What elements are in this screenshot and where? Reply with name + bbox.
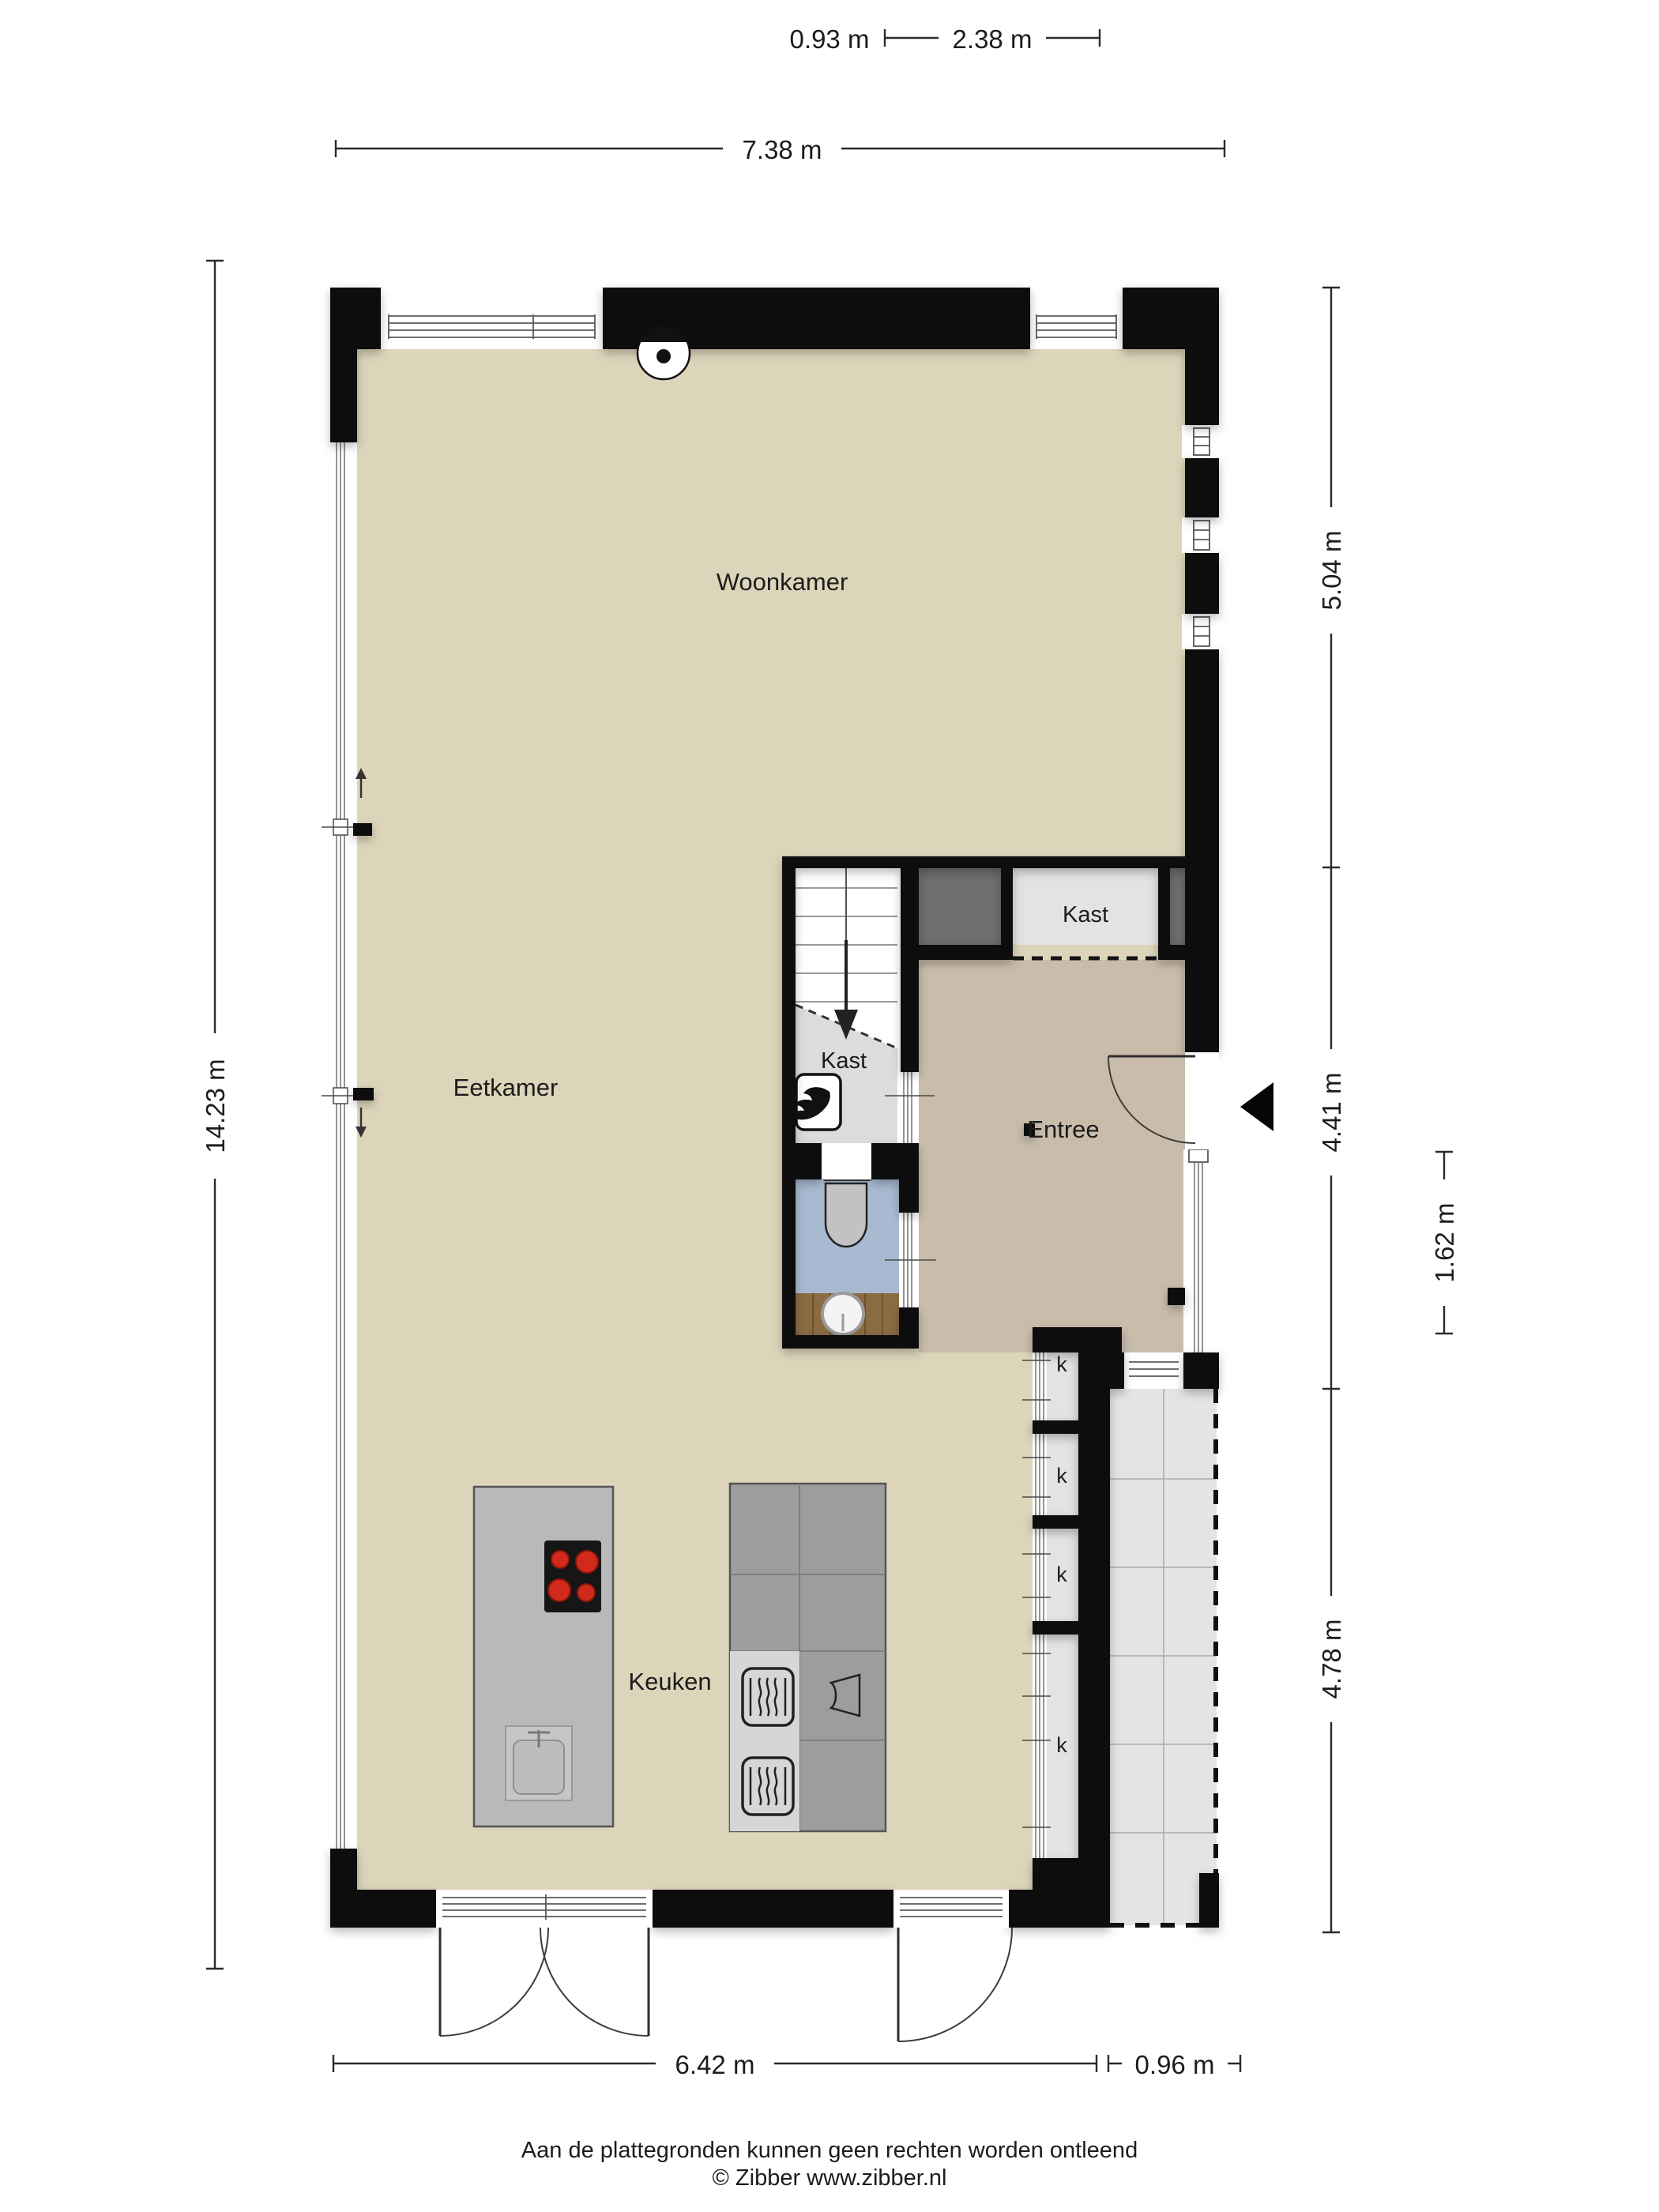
- dim-bottom-interior: 6.42 m: [333, 2048, 1097, 2079]
- footer-copyright: © Zibber www.zibber.nl: [713, 2165, 947, 2191]
- footer-disclaimer: Aan de plattegronden kunnen geen rechten…: [521, 2138, 1138, 2163]
- label-eetkamer: Eetkamer: [453, 1074, 559, 1101]
- label-keuken: Keuken: [628, 1668, 711, 1695]
- dim-right-upper: 5.04 m: [1311, 288, 1346, 867]
- window-right-entree: [1183, 1149, 1219, 1353]
- ceiling-vent-icon: [638, 327, 690, 379]
- window-right-1: [1182, 425, 1222, 458]
- label-closet-k: k: [1056, 1352, 1067, 1376]
- svg-text:5.04 m: 5.04 m: [1317, 531, 1346, 611]
- footer: Aan de plattegronden kunnen geen rechten…: [521, 2138, 1138, 2191]
- svg-text:4.78 m: 4.78 m: [1317, 1619, 1346, 1699]
- svg-text:0.93 m: 0.93 m: [790, 24, 870, 54]
- svg-text:6.42 m: 6.42 m: [675, 2050, 755, 2079]
- dim-width-stairs: 0.93 m: [781, 22, 878, 54]
- closet-dark-right: [1170, 868, 1187, 945]
- dim-entree-inner: 1.62 m: [1424, 1152, 1459, 1334]
- garden-single-door: [893, 1890, 1012, 2041]
- dim-width-total: 7.38 m: [336, 133, 1224, 164]
- dim-width-closets: 2.38 m: [885, 22, 1100, 54]
- dim-height-total: 14.23 m: [194, 261, 230, 1969]
- closet-dark-left: [919, 868, 1001, 945]
- label-closet-k: k: [1056, 1464, 1067, 1488]
- label-kast-under-stairs: Kast: [821, 1048, 867, 1074]
- floorplan-page: Woonkamer Eetkamer Keuken Entree Kast Ka…: [0, 0, 1659, 2212]
- boiler: [792, 1074, 841, 1130]
- wall-socket: [1168, 1288, 1185, 1305]
- kitchen-counter: [730, 1484, 886, 1831]
- svg-text:4.41 m: 4.41 m: [1317, 1073, 1346, 1153]
- svg-text:7.38 m: 7.38 m: [743, 135, 822, 164]
- dim-right-entree: 4.41 m: [1311, 867, 1346, 1389]
- window-top-left: [381, 288, 603, 349]
- island-sink: [506, 1726, 572, 1800]
- entrance-direction-arrow: [1240, 1082, 1273, 1131]
- svg-text:0.96 m: 0.96 m: [1135, 2050, 1215, 2079]
- dim-bottom-terrace: 0.96 m: [1108, 2048, 1240, 2079]
- window-right-3: [1182, 614, 1222, 649]
- label-closet-k: k: [1056, 1563, 1067, 1586]
- svg-text:14.23 m: 14.23 m: [201, 1059, 230, 1153]
- kitchen-island: [474, 1487, 613, 1826]
- terrace: [1110, 1389, 1217, 1925]
- cooktop: [544, 1540, 601, 1612]
- svg-text:1.62 m: 1.62 m: [1430, 1203, 1459, 1283]
- label-woonkamer: Woonkamer: [717, 568, 848, 596]
- label-entree: Entree: [1027, 1115, 1099, 1143]
- garden-double-door: [436, 1890, 653, 2036]
- label-kast-upper: Kast: [1063, 902, 1108, 927]
- dim-right-lower: 4.78 m: [1311, 1389, 1346, 1932]
- window-top-right: [1030, 288, 1123, 349]
- toilet-door-opening: [822, 1143, 871, 1179]
- window-terrace: [1124, 1352, 1183, 1389]
- window-right-2: [1182, 517, 1222, 553]
- label-closet-k: k: [1056, 1733, 1067, 1757]
- svg-text:2.38 m: 2.38 m: [953, 24, 1033, 54]
- floor-entree: [919, 960, 1185, 1352]
- terrace-post: [1199, 1873, 1219, 1928]
